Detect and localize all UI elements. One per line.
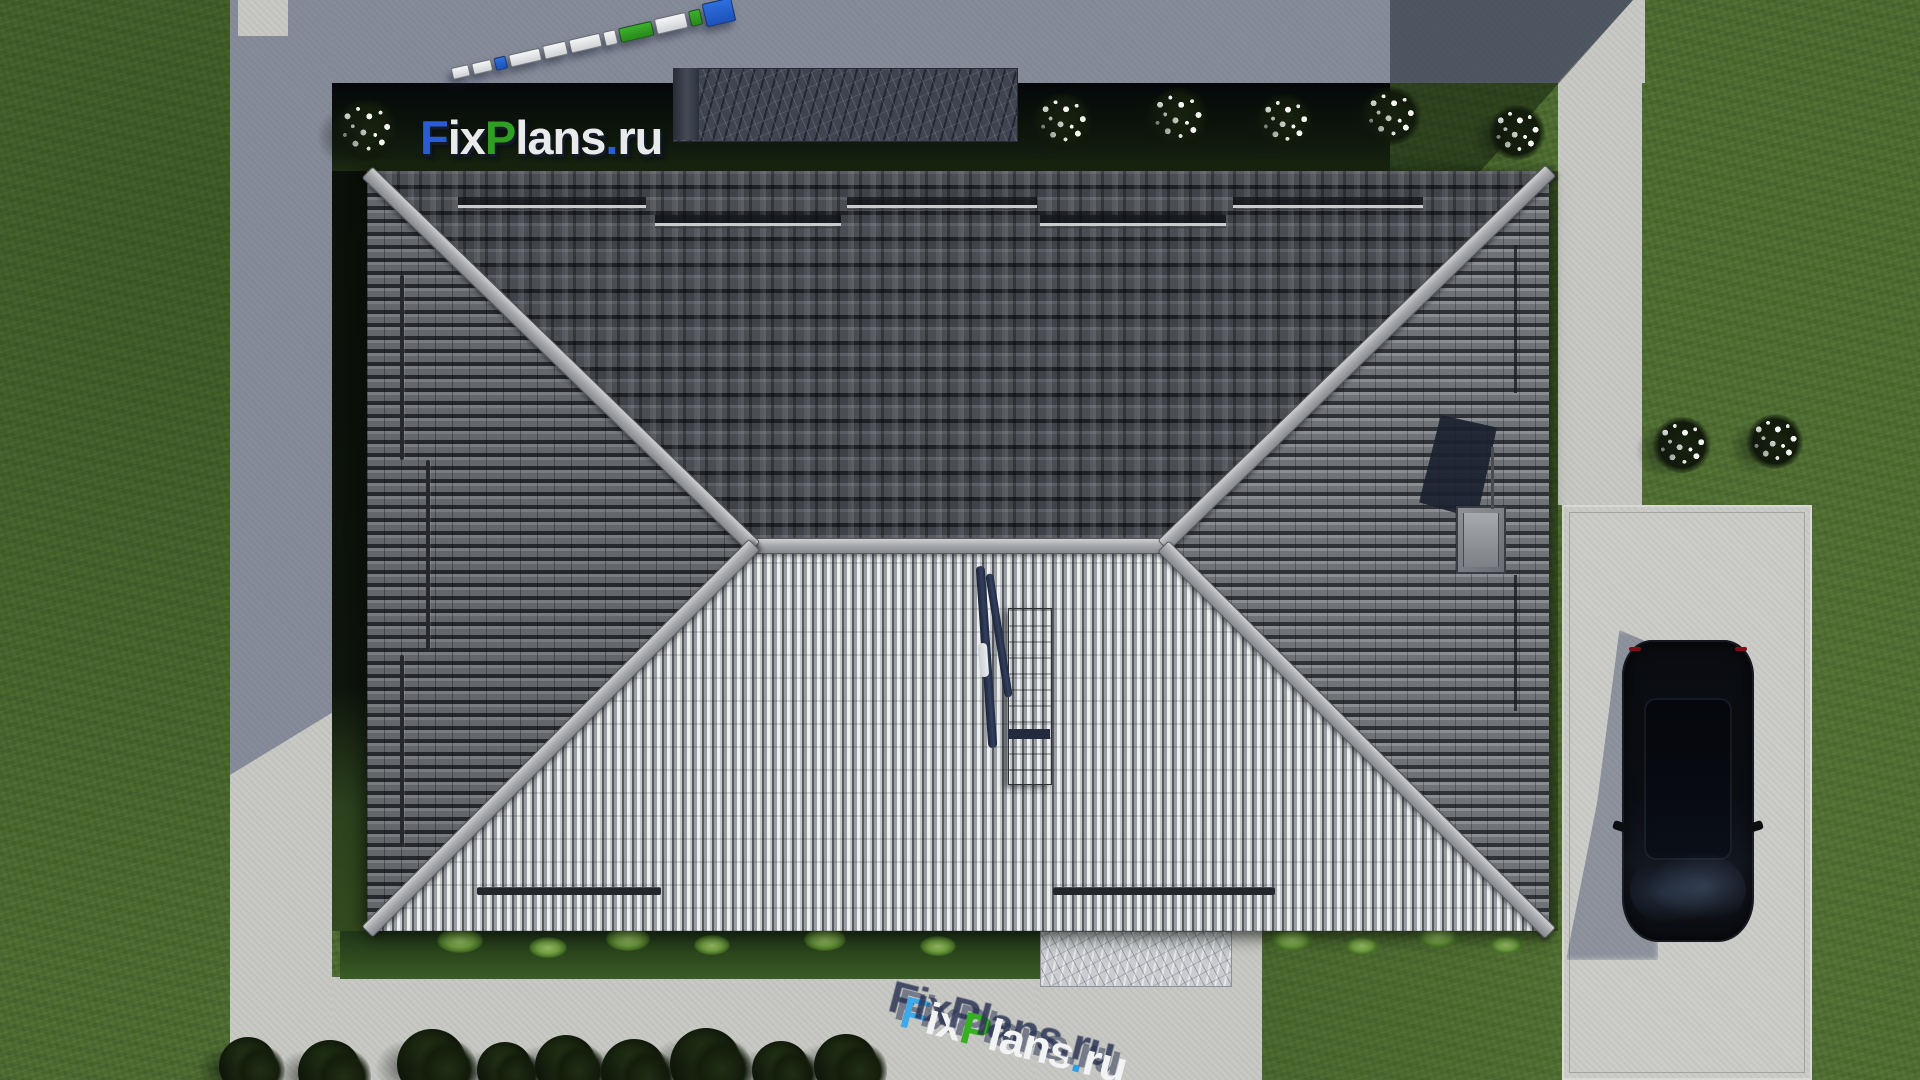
logo-letter: lans <box>515 111 605 164</box>
car-hood-reflection <box>1630 850 1746 930</box>
roof-ladder-rail <box>400 275 404 460</box>
snow-guard-bar <box>1233 197 1423 210</box>
house-shadow-left <box>230 83 332 775</box>
snow-guard-bar <box>847 197 1037 210</box>
logo-letter: F <box>420 111 448 164</box>
aerial-house-render: FixPlans.ru FixPlans.ru <box>0 0 1920 1080</box>
eave-guard-bar <box>477 887 661 895</box>
ruler-segment <box>568 33 602 54</box>
bottom-tree <box>219 1037 277 1080</box>
bed-shrub <box>1489 935 1523 954</box>
flower-bush <box>1652 417 1712 473</box>
logo-letter: P <box>485 111 515 164</box>
ruler-segment <box>654 12 689 35</box>
snow-guard-bar <box>458 197 646 210</box>
roof-ladder-rail <box>400 655 404 847</box>
logo-letter: ix <box>448 111 485 164</box>
roof-vent-pipe <box>1491 447 1494 509</box>
pavement-corner-lit <box>238 0 288 36</box>
pavement-right-path <box>1558 0 1642 505</box>
stone-slab-top <box>673 68 1018 142</box>
stone-slab-bottom <box>1040 931 1232 987</box>
roof-ladder-rail <box>426 460 430 650</box>
flower-bush <box>1360 87 1422 145</box>
eave-guard-bar <box>1053 887 1275 895</box>
flower-bush <box>1488 105 1546 160</box>
stone-slab-top-edge <box>673 68 699 140</box>
roof-window <box>1456 506 1506 574</box>
car-taillight-right <box>1735 647 1747 651</box>
flower-bush <box>1146 88 1210 148</box>
hip-roof <box>367 171 1549 931</box>
logo-letter: ru <box>617 111 662 164</box>
ruler-segment <box>471 59 493 75</box>
ruler-segment <box>618 20 655 42</box>
flower-bush <box>1746 414 1804 469</box>
watermark-logo-top: FixPlans.ru <box>420 110 662 165</box>
snow-guard-bar <box>655 215 841 228</box>
ruler-segment <box>493 55 508 70</box>
roof-edge-rail <box>1514 245 1517 393</box>
ruler-segment <box>602 29 618 47</box>
roof-walkway-joint <box>1008 729 1050 739</box>
bed-shrub <box>1271 928 1313 951</box>
car-taillight-left <box>1629 647 1641 651</box>
roof-edge-rail <box>1514 575 1517 711</box>
ruler-segment <box>508 47 542 67</box>
snow-guard-bar <box>1040 215 1226 228</box>
flower-bush <box>333 99 399 161</box>
ruler-segment <box>451 64 471 80</box>
grass-strip-right <box>1549 171 1558 931</box>
bed-shrub <box>1345 936 1379 955</box>
roof-walkway-panel <box>1008 608 1052 785</box>
bed-shrub <box>529 937 567 958</box>
bottom-tree <box>814 1034 878 1080</box>
ridge-cap-main <box>753 538 1165 554</box>
car <box>1622 640 1754 942</box>
flower-bush <box>1255 94 1315 150</box>
logo-letter: . <box>605 111 617 164</box>
flower-bush <box>1032 93 1094 151</box>
ruler-segment <box>542 41 569 60</box>
planting-strip-left <box>332 171 367 931</box>
car-roof-glass <box>1644 698 1732 860</box>
ruler-segment <box>688 9 703 27</box>
